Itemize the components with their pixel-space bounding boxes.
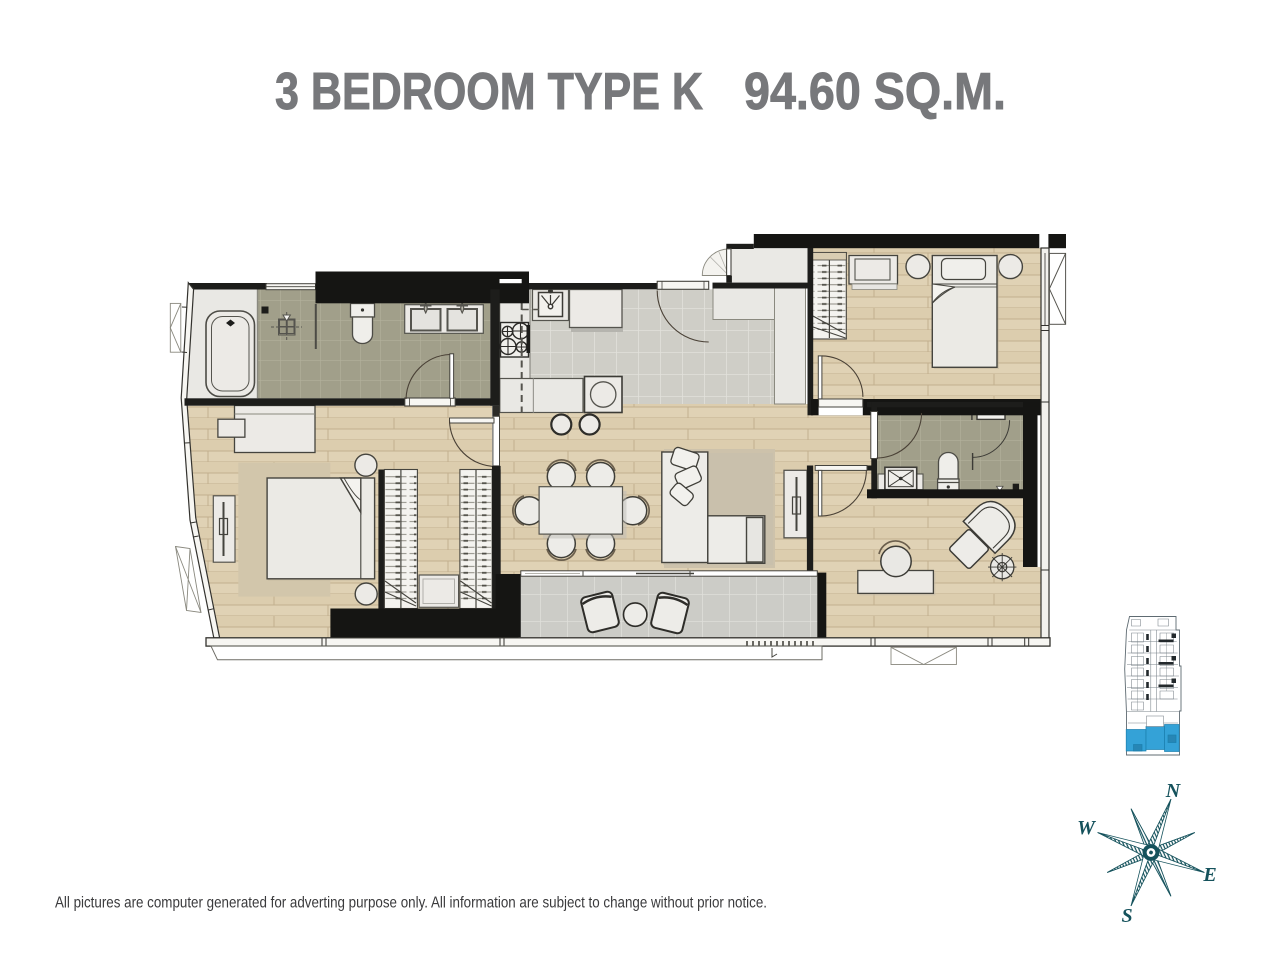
svg-text:All pictures are computer gene: All pictures are computer generated for … [55,895,767,912]
svg-text:W: W [1077,817,1096,839]
svg-text:E: E [1202,864,1216,886]
svg-text:N: N [1165,780,1182,802]
svg-text:3 BEDROOM TYPE K: 3 BEDROOM TYPE K [275,63,703,121]
svg-text:S: S [1121,905,1132,927]
svg-text:94.60 SQ.M.: 94.60 SQ.M. [744,63,1006,121]
